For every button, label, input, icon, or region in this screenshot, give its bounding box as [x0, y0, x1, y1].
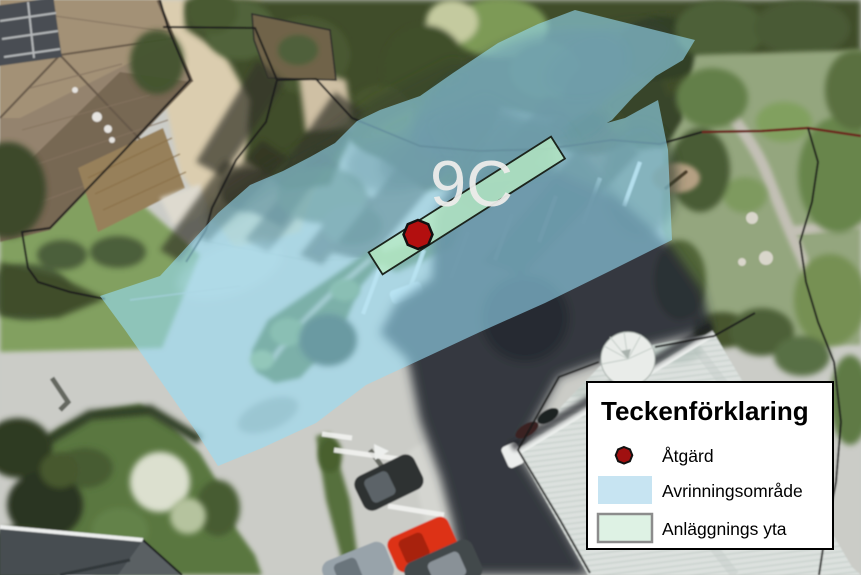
svg-text:9C: 9C [430, 147, 513, 220]
svg-text:Anläggnings yta: Anläggnings yta [662, 519, 787, 539]
svg-text:Teckenförklaring: Teckenförklaring [601, 396, 809, 426]
svg-text:Åtgärd: Åtgärd [662, 446, 714, 466]
svg-text:Avrinningsområde: Avrinningsområde [662, 481, 803, 501]
